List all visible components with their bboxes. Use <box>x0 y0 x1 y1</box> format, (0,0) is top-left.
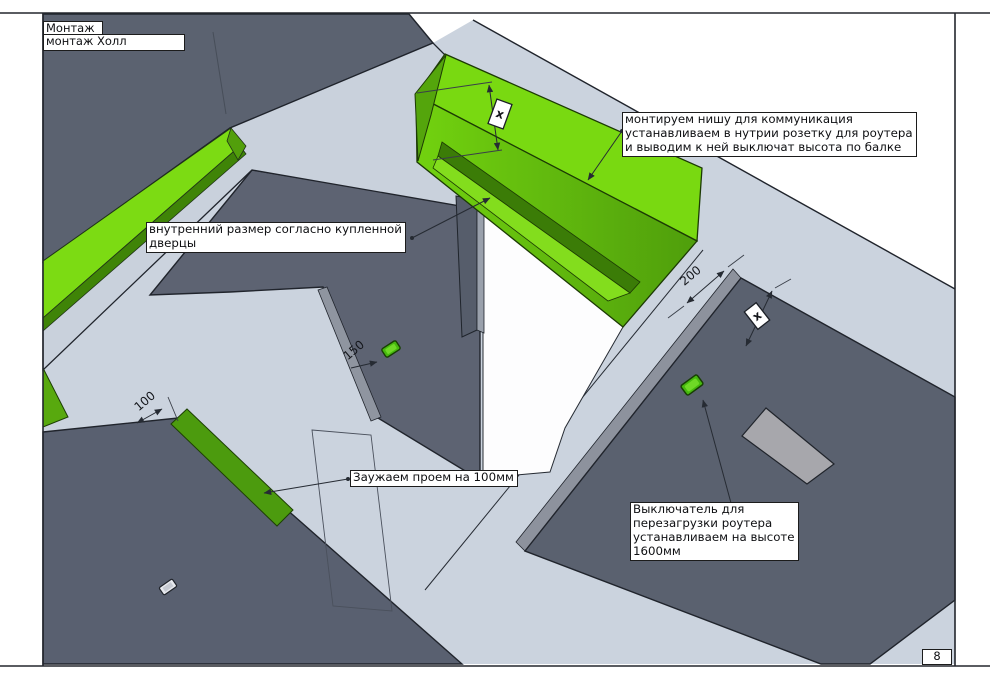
annotation-router-switch: Выключатель для перезагрузки роутера уст… <box>630 502 799 561</box>
annotation-niche: монтируем нишу для коммуникация устанавл… <box>622 112 917 157</box>
drawing-canvas: x x 200 150 100 <box>0 0 990 674</box>
annotation-switch-line2: перезагрузки роутера <box>633 517 795 531</box>
annotation-inner-line1: внутренний размер согласно купленной <box>149 223 402 237</box>
annotation-niche-line3: и выводим к ней выключат высота по балке <box>625 141 913 155</box>
annotation-switch-line3: устанавливаем на высоте <box>633 531 795 545</box>
page-number-box: 8 <box>922 649 952 665</box>
annotation-switch-line1: Выключатель для <box>633 503 795 517</box>
annotation-narrow-opening: Заужаем проем на 100мм <box>350 470 518 487</box>
drawing-subtitle: монтаж Холл <box>46 35 181 49</box>
drawing-page: x x 200 150 100 <box>0 0 990 674</box>
annotation-inner-line2: дверцы <box>149 237 402 251</box>
annotation-switch-line4: 1600мм <box>633 545 795 559</box>
annotation-inner-size: внутренний размер согласно купленной две… <box>146 222 406 253</box>
drawing-subtitle-box: монтаж Холл <box>43 34 185 51</box>
annotation-niche-line2: устанавливаем в нутрии розетку для роуте… <box>625 127 913 141</box>
annotation-niche-line1: монтируем нишу для коммуникация <box>625 113 913 127</box>
annotation-narrow-text: Заужаем проем на 100мм <box>353 471 514 485</box>
page-number: 8 <box>933 649 940 663</box>
door-jamb-face <box>477 200 484 333</box>
